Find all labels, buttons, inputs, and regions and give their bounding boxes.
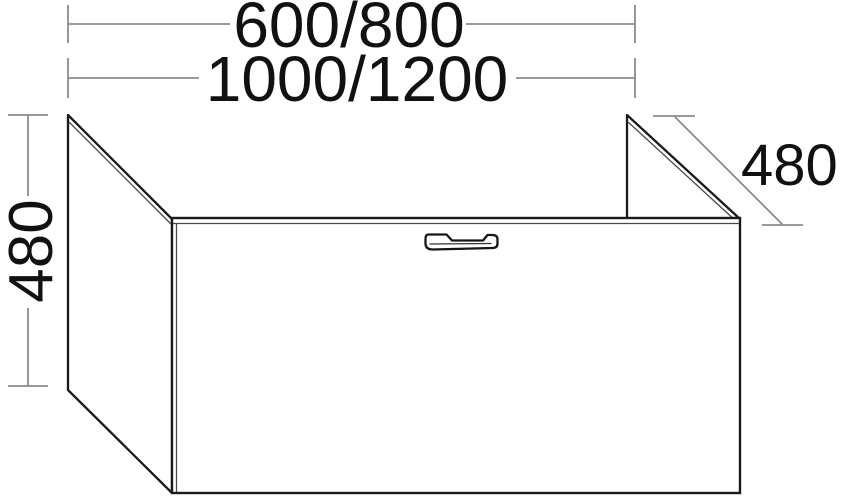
technical-drawing-canvas: 600/800 1000/1200 480 480	[0, 0, 844, 496]
dimension-label-depth-480: 480	[741, 133, 838, 198]
vanity-unit-technical-drawing: 600/800 1000/1200 480 480	[0, 0, 844, 496]
cabinet-right-side-panel	[627, 115, 740, 222]
cabinet-left-side-panel	[68, 115, 172, 493]
cabinet-front-drawer-panel	[172, 218, 740, 493]
dimension-label-height-480: 480	[0, 199, 66, 302]
right-side-panel-outline	[627, 115, 740, 219]
front-panel-outline	[172, 218, 740, 493]
drawer-handle-inner-edge	[430, 244, 492, 245]
dimension-label-1000-1200: 1000/1200	[206, 43, 509, 115]
dimension-height-480-left: 480	[0, 115, 66, 386]
left-side-panel-outline	[68, 115, 172, 493]
dimension-width-1000-1200: 1000/1200	[68, 43, 635, 115]
